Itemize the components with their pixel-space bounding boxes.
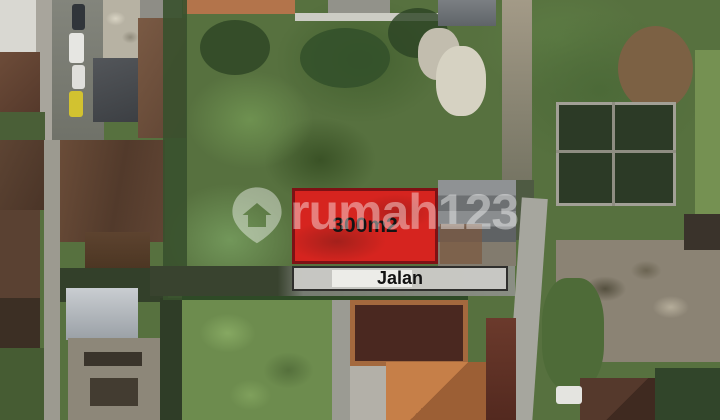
walled-compound bbox=[556, 102, 676, 206]
house-roof bbox=[580, 378, 662, 420]
bushes bbox=[542, 278, 604, 390]
sand-patch bbox=[436, 46, 486, 116]
compound-wall bbox=[556, 150, 676, 153]
dirt-road bbox=[502, 0, 532, 210]
hip-roof-row bbox=[60, 140, 165, 242]
dirt-patch bbox=[618, 26, 693, 111]
white-building-roof bbox=[0, 0, 40, 52]
vegetation-patch bbox=[0, 348, 44, 420]
plot-area-label: 300m2 bbox=[332, 214, 397, 238]
brown-roof-patch bbox=[440, 224, 482, 264]
orange-tile-roof bbox=[183, 0, 295, 14]
orange-tile-roof bbox=[386, 362, 492, 420]
parked-car-dark bbox=[72, 4, 85, 30]
plot-highlight: 300m2 bbox=[292, 188, 438, 264]
compound-wall bbox=[612, 102, 615, 206]
construction-metal-roof bbox=[66, 288, 138, 340]
brown-roof bbox=[0, 52, 40, 114]
alley-wall bbox=[44, 140, 60, 420]
grass-field bbox=[182, 296, 334, 420]
hip-roof bbox=[0, 140, 45, 210]
tree-strip bbox=[160, 298, 184, 420]
parked-van-white bbox=[69, 33, 84, 63]
tree-strip bbox=[163, 0, 187, 300]
aerial-photo-background: 300m2 Jalan rumah123 bbox=[0, 0, 720, 420]
concrete-path bbox=[332, 300, 350, 420]
tree-canopy bbox=[655, 368, 720, 420]
hip-roof bbox=[0, 210, 40, 300]
tree-canopy bbox=[300, 28, 390, 88]
parked-car-white bbox=[556, 386, 582, 404]
red-roof-strip bbox=[486, 318, 516, 420]
parked-car-white bbox=[72, 65, 85, 89]
construction-opening bbox=[90, 378, 138, 406]
dark-roof-corner bbox=[684, 214, 720, 250]
concrete-yard bbox=[350, 366, 388, 420]
tree-canopy bbox=[200, 20, 270, 75]
construction-opening bbox=[84, 352, 142, 366]
gray-metal-roof bbox=[438, 0, 496, 26]
road-label-band: Jalan bbox=[292, 266, 508, 291]
maroon-tile-roof bbox=[350, 300, 468, 366]
road-label: Jalan bbox=[377, 268, 423, 289]
pin-house-icon bbox=[226, 185, 288, 250]
dark-roof bbox=[0, 298, 40, 348]
parked-car-yellow bbox=[69, 91, 83, 117]
